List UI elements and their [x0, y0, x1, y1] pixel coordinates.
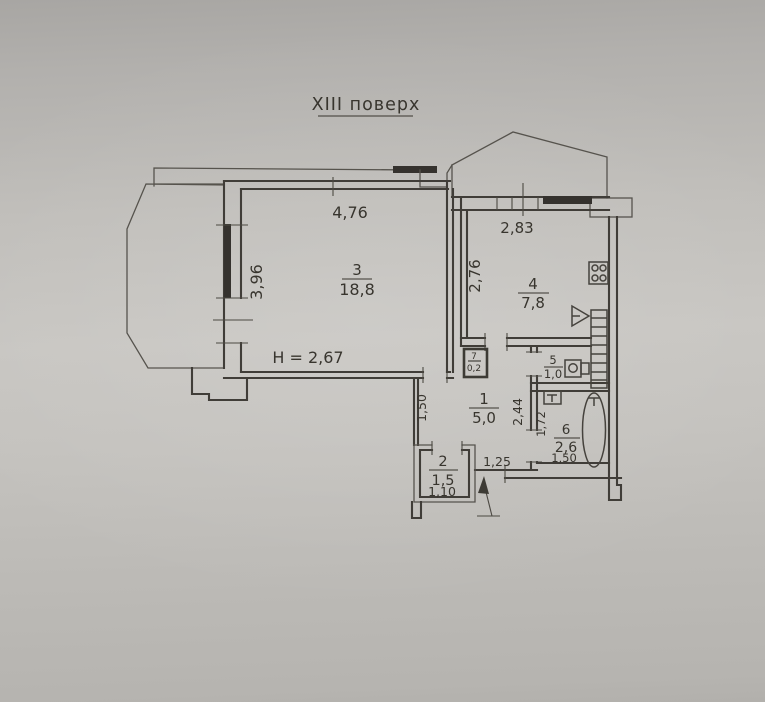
dim-hall-width: 2,44 — [510, 398, 525, 426]
room3-number: 3 — [352, 261, 362, 279]
room6-number: 6 — [562, 422, 571, 438]
room1-number: 1 — [479, 390, 489, 408]
balcony-outline — [127, 184, 224, 368]
room3-area: 18,8 — [339, 280, 375, 299]
room2-foot-step — [412, 502, 421, 518]
outer-parapet-wall — [154, 168, 420, 186]
room7-area: 0,2 — [467, 364, 481, 374]
dim-room6-depth: 1,72 — [534, 411, 548, 437]
dim-hall-depth: 1,50 — [414, 394, 429, 422]
room4-number: 4 — [528, 275, 538, 293]
room5-number: 5 — [549, 353, 556, 367]
floor-plan-drawing: XIII поверх — [0, 0, 765, 702]
room2-number: 2 — [438, 454, 447, 470]
room2-door-jambs — [432, 441, 462, 455]
room5-area: 1,0 — [544, 367, 562, 381]
room3-label: 3 18,8 — [339, 261, 375, 299]
room3-right-wall — [447, 183, 453, 372]
room6-label: 6 2,6 — [554, 422, 580, 456]
entrance-arrow-icon — [477, 476, 500, 516]
dim-room4-width: 2,83 — [500, 219, 533, 237]
room2-area: 1,5 — [431, 473, 454, 489]
balcony-bottom-steps — [192, 368, 247, 400]
dim-room3-depth: 3,96 — [247, 264, 266, 300]
scanned-floor-plan: XIII поверх — [0, 0, 765, 702]
kitchen-bottom-wall — [461, 338, 591, 346]
room3-door-jambs — [423, 367, 447, 383]
ceiling-height-label: H = 2,67 — [272, 348, 343, 367]
kitchen-window-hatch — [543, 196, 592, 204]
room5-label: 5 1,0 — [544, 353, 563, 381]
room1-label: 1 5,0 — [469, 390, 499, 427]
shaft-ladder-icon — [591, 310, 607, 388]
bathtub-icon — [583, 393, 606, 467]
room1-area: 5,0 — [472, 409, 496, 427]
entry-bottom-wall — [475, 470, 621, 478]
bay-pentagon-outline — [452, 132, 607, 198]
room4-area: 7,8 — [521, 294, 545, 312]
dim-room4-depth: 2,76 — [466, 259, 484, 292]
room6-area: 2,6 — [555, 440, 577, 456]
room3-top-wall — [224, 181, 450, 189]
hall-door-jambs — [526, 352, 542, 462]
page-title: XIII поверх — [312, 95, 421, 115]
vent-icon — [572, 306, 589, 326]
right-outer-wall — [609, 217, 621, 500]
dim-room3-width: 4,76 — [332, 203, 368, 222]
toilet-icon — [565, 360, 589, 377]
room7-label: 7 0,2 — [467, 352, 481, 374]
room2-label: 2 1,5 — [429, 454, 458, 489]
stove-icon — [589, 262, 608, 284]
sink-icon — [544, 391, 561, 404]
wc-bath-divider-wall — [531, 383, 609, 391]
hall-right-wall — [531, 346, 537, 470]
room4-label: 4 7,8 — [518, 275, 549, 312]
bay-pier — [590, 198, 632, 217]
top-window-hatch — [393, 166, 437, 173]
balcony-window-hatch — [224, 224, 231, 298]
dim-entry-opening: 1,25 — [483, 454, 511, 469]
